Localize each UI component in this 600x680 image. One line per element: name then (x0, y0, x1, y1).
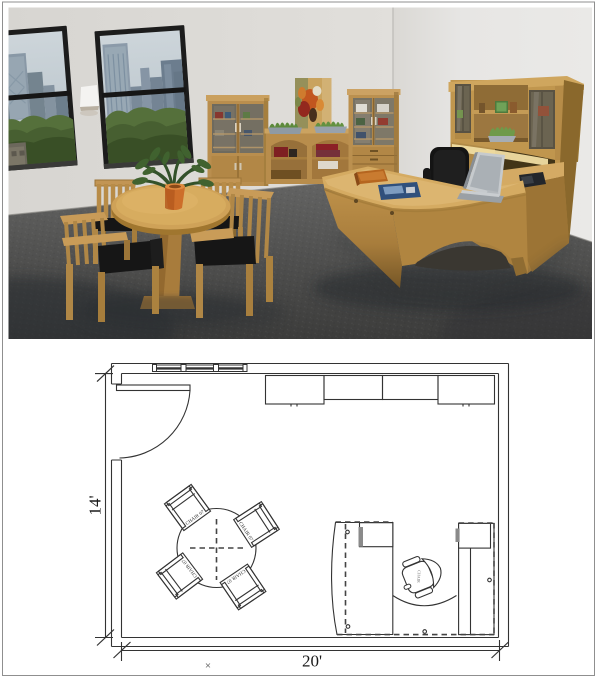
svg-text:CHAIR: CHAIR (416, 570, 422, 583)
svg-text:20': 20' (302, 652, 322, 671)
svg-text:×: × (205, 660, 211, 672)
svg-text:14': 14' (86, 495, 105, 515)
